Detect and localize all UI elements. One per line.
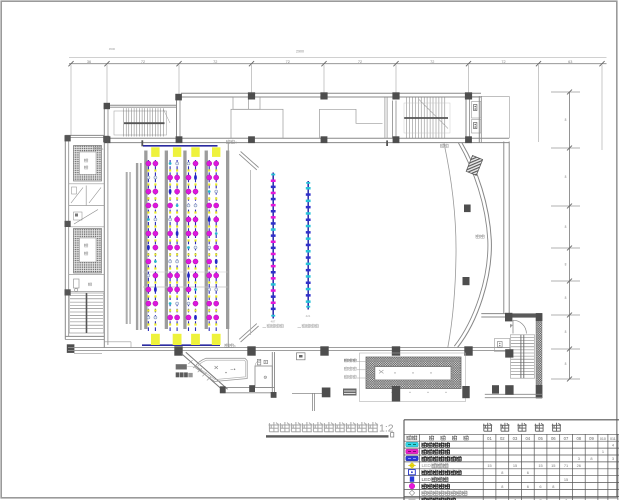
svg-text:487: 487 <box>271 319 276 323</box>
svg-text:8: 8 <box>565 263 567 267</box>
svg-text:LED: LED <box>422 463 432 469</box>
svg-text:71: 71 <box>564 463 568 468</box>
svg-text:15: 15 <box>487 463 491 468</box>
svg-text:3: 3 <box>612 456 614 461</box>
svg-text:09: 09 <box>589 436 594 441</box>
svg-text:8: 8 <box>590 456 592 461</box>
svg-text:04: 04 <box>525 436 530 441</box>
svg-text:8: 8 <box>565 362 567 366</box>
svg-text:72: 72 <box>430 60 434 64</box>
svg-text:72: 72 <box>358 60 362 64</box>
svg-text:1: 1 <box>602 449 604 454</box>
svg-text:8: 8 <box>565 175 567 179</box>
svg-text:72: 72 <box>141 60 145 64</box>
svg-text:08: 08 <box>576 436 581 441</box>
svg-text:36: 36 <box>87 60 91 64</box>
svg-text:15: 15 <box>564 477 568 482</box>
svg-text:8: 8 <box>565 118 567 122</box>
svg-text:2900: 2900 <box>296 50 304 54</box>
svg-text:4500: 4500 <box>109 47 116 51</box>
svg-text:63: 63 <box>568 60 572 64</box>
svg-text:03: 03 <box>513 436 518 441</box>
svg-text:01: 01 <box>487 436 492 441</box>
svg-text:72: 72 <box>213 60 217 64</box>
svg-text:421: 421 <box>306 314 311 318</box>
svg-text:15: 15 <box>551 463 555 468</box>
svg-text:6: 6 <box>527 484 529 489</box>
svg-text:05: 05 <box>538 436 543 441</box>
svg-text:8: 8 <box>552 484 554 489</box>
svg-text:6: 6 <box>539 484 541 489</box>
svg-text:010: 010 <box>600 437 606 441</box>
svg-text:6: 6 <box>527 470 529 475</box>
svg-text:8: 8 <box>565 330 567 334</box>
svg-text:06: 06 <box>551 436 556 441</box>
svg-text:8: 8 <box>501 484 503 489</box>
svg-text:07: 07 <box>564 436 569 441</box>
svg-text:3: 3 <box>578 456 580 461</box>
svg-text:15: 15 <box>513 463 517 468</box>
svg-text:8: 8 <box>565 296 567 300</box>
svg-text:02: 02 <box>500 436 505 441</box>
svg-text:15: 15 <box>538 463 542 468</box>
svg-text:011: 011 <box>610 437 616 441</box>
svg-text:LED: LED <box>422 477 432 483</box>
svg-text:8: 8 <box>501 470 503 475</box>
svg-text:72: 72 <box>286 60 290 64</box>
svg-text:26: 26 <box>577 463 581 468</box>
svg-text:8: 8 <box>565 225 567 229</box>
svg-text:72: 72 <box>501 60 505 64</box>
